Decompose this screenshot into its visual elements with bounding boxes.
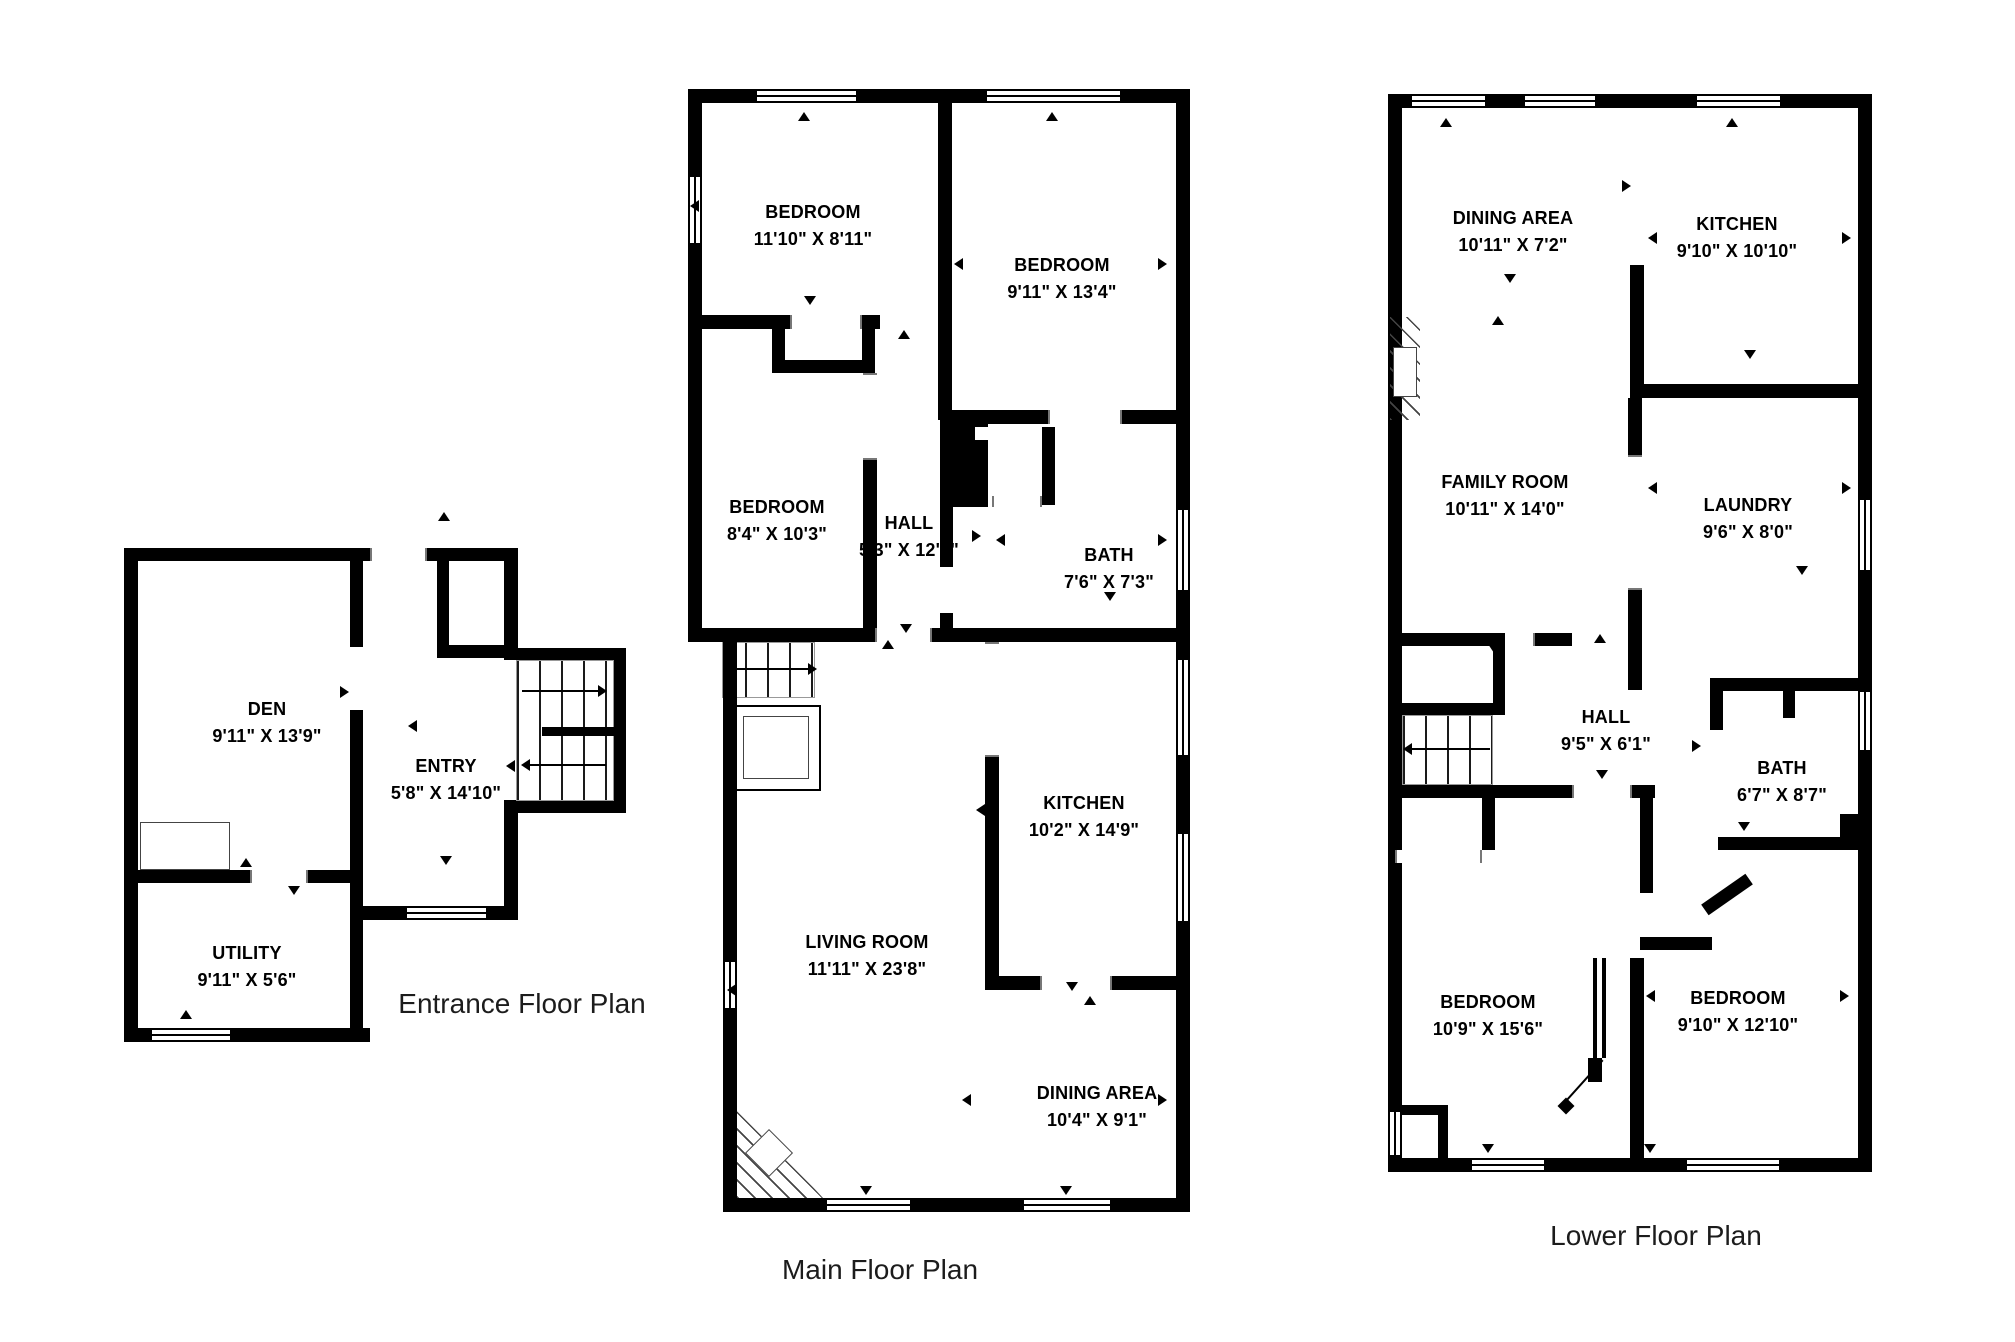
wall	[1558, 1098, 1575, 1115]
room-label-hall: HALL 9'5" X 6'1"	[1561, 704, 1651, 758]
door-marker-icon	[1726, 118, 1738, 127]
lower-floor-plan: DINING AREA 10'11" X 7'2" KITCHEN 9'10" …	[0, 0, 2015, 1342]
wall	[1783, 678, 1795, 718]
door-opening	[1572, 785, 1632, 798]
stair-direction-arrow-icon	[1412, 748, 1490, 750]
door-marker-icon	[1796, 566, 1808, 575]
door-marker-icon	[1692, 740, 1701, 752]
room-dims: 10'9" X 15'6"	[1433, 1016, 1543, 1043]
wall	[1546, 1158, 1685, 1172]
window	[1695, 94, 1782, 108]
door-marker-icon	[1738, 822, 1750, 831]
door-marker-icon	[1648, 482, 1657, 494]
fireplace-box	[1393, 347, 1417, 397]
wall	[1858, 94, 1872, 498]
window	[1858, 690, 1872, 752]
door-marker-icon	[1482, 1144, 1494, 1153]
wall	[1858, 752, 1872, 1172]
wall	[1388, 633, 1502, 646]
room-name: HALL	[1561, 704, 1651, 731]
caption-lower-floor-plan: Lower Floor Plan	[1550, 1220, 1762, 1252]
wall-angled	[1701, 874, 1753, 916]
wall	[1482, 785, 1572, 798]
wall	[1628, 590, 1642, 690]
wall	[1388, 1158, 1470, 1172]
wall	[1630, 265, 1644, 398]
room-dims: 9'10" X 12'10"	[1678, 1012, 1799, 1039]
room-label-bedroom-left: BEDROOM 10'9" X 15'6"	[1433, 989, 1543, 1043]
wall	[1482, 793, 1495, 850]
stairs	[1402, 715, 1493, 785]
door-marker-icon	[1842, 482, 1851, 494]
room-name: BEDROOM	[1433, 989, 1543, 1016]
wall	[1597, 94, 1695, 108]
door-marker-icon	[1596, 770, 1608, 779]
shower-fixture	[1840, 814, 1860, 839]
room-label-kitchen: KITCHEN 9'10" X 10'10"	[1677, 211, 1798, 265]
window	[1858, 498, 1872, 572]
wall	[1640, 790, 1653, 893]
door-marker-icon	[1504, 274, 1516, 283]
door-marker-icon	[1648, 232, 1657, 244]
wall	[1628, 398, 1642, 455]
door-marker-icon	[1488, 644, 1500, 653]
room-dims: 10'11" X 7'2"	[1453, 232, 1574, 259]
wall	[1438, 1105, 1448, 1165]
room-dims: 9'6" X 8'0"	[1703, 519, 1793, 546]
wall	[1781, 1158, 1872, 1172]
room-label-family-room: FAMILY ROOM 10'11" X 14'0"	[1441, 469, 1568, 523]
window	[1410, 94, 1487, 108]
wall	[1535, 633, 1572, 646]
wall	[1640, 937, 1712, 950]
door-opening	[1502, 633, 1535, 646]
room-name: DINING AREA	[1453, 205, 1574, 232]
door-marker-icon	[1392, 602, 1401, 614]
room-label-bath: BATH 6'7" X 8'7"	[1737, 755, 1827, 809]
door-marker-icon	[1842, 232, 1851, 244]
room-name: KITCHEN	[1677, 211, 1798, 238]
door-marker-icon	[1594, 634, 1606, 643]
door-marker-icon	[1440, 118, 1452, 127]
room-dims: 6'7" X 8'7"	[1737, 782, 1827, 809]
room-name: FAMILY ROOM	[1441, 469, 1568, 496]
window	[1523, 94, 1597, 108]
door-marker-icon	[1622, 180, 1631, 192]
room-name: BEDROOM	[1678, 985, 1799, 1012]
room-label-laundry: LAUNDRY 9'6" X 8'0"	[1703, 492, 1793, 546]
wall	[1630, 384, 1872, 398]
window	[1388, 1110, 1402, 1160]
room-label-bedroom-right: BEDROOM 9'10" X 12'10"	[1678, 985, 1799, 1039]
wall	[1593, 958, 1597, 1058]
door-marker-icon	[1492, 316, 1504, 325]
room-name: BATH	[1737, 755, 1827, 782]
floorplan-canvas: DEN 9'11" X 13'9" ENTRY 5'8" X 14'10" UT…	[0, 0, 2015, 1342]
door-marker-icon	[1392, 180, 1401, 192]
window	[1685, 1158, 1781, 1172]
door-marker-icon	[1644, 1144, 1656, 1153]
door-marker-icon	[1744, 350, 1756, 359]
wall	[1630, 958, 1644, 1172]
room-dims: 10'11" X 14'0"	[1441, 496, 1568, 523]
room-label-dining-area: DINING AREA 10'11" X 7'2"	[1453, 205, 1574, 259]
door-marker-icon	[1840, 990, 1849, 1002]
wall	[1388, 785, 1495, 798]
door-opening	[1395, 850, 1482, 863]
wall	[1388, 703, 1495, 715]
door-marker-icon	[1646, 990, 1655, 1002]
wall	[1487, 94, 1523, 108]
wall	[1710, 678, 1723, 730]
room-dims: 9'10" X 10'10"	[1677, 238, 1798, 265]
room-dims: 9'5" X 6'1"	[1561, 731, 1651, 758]
room-name: LAUNDRY	[1703, 492, 1793, 519]
window	[1470, 1158, 1546, 1172]
door-opening	[1628, 455, 1642, 590]
wall	[1602, 958, 1606, 1058]
wall	[1858, 572, 1872, 690]
